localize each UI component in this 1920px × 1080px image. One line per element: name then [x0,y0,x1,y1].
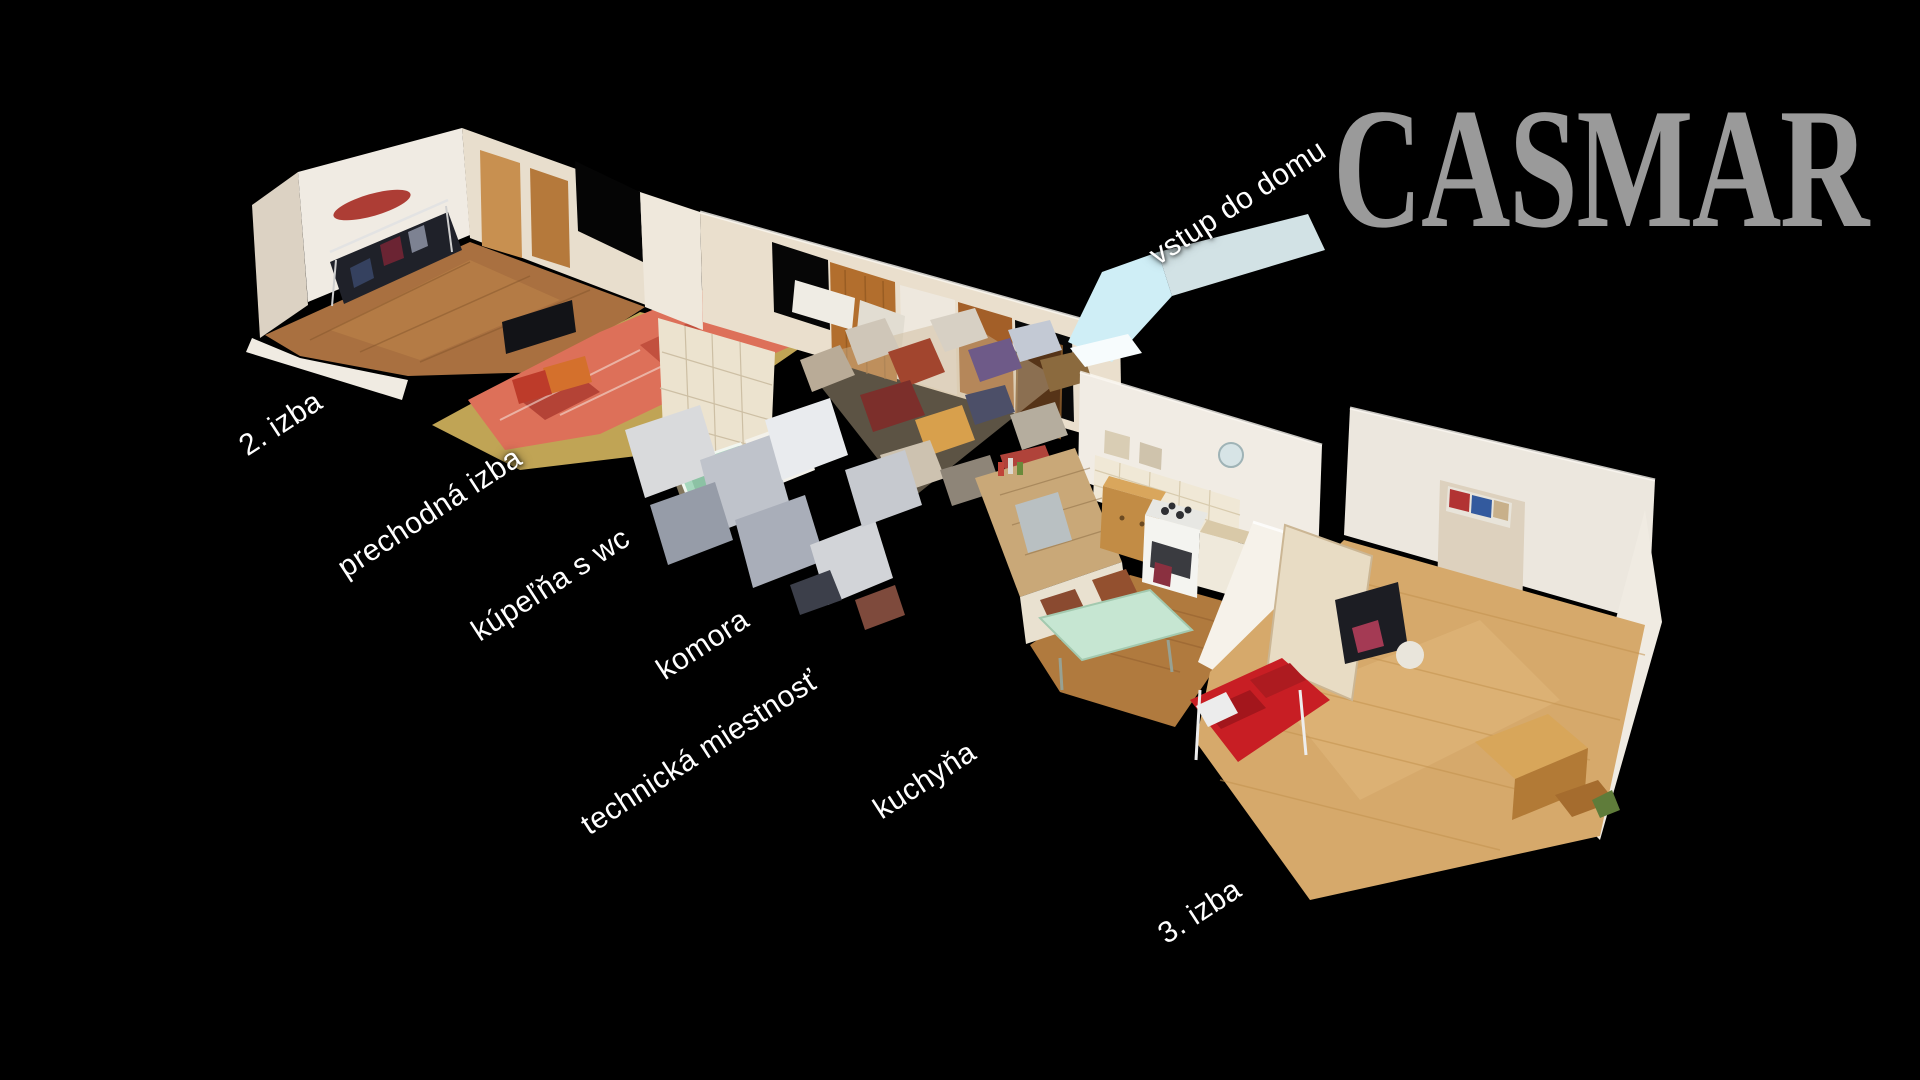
wardrobe-door [530,168,570,268]
sack [1396,641,1424,669]
wardrobe-door [480,150,522,258]
page: 2. izba prechodná izba kúpeľňa s wc komo… [0,0,1920,1080]
wall-lamp [1219,443,1243,467]
casmar-logo: CASMAR [1333,90,1868,248]
